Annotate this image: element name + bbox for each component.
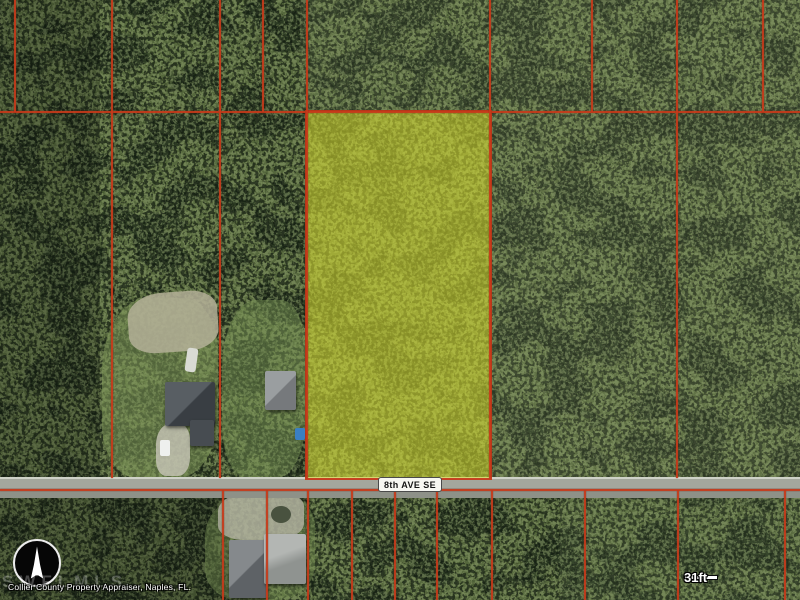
- parcel-boundary-line: [394, 491, 396, 600]
- parcel-boundary-line: [351, 491, 353, 600]
- map-canvas[interactable]: 8th AVE SE SWFLMLS Collier County Proper…: [0, 0, 800, 600]
- building-footprint: [264, 534, 306, 584]
- turnaround-island: [271, 506, 291, 523]
- parcel-boundary-line: [219, 0, 221, 478]
- building-footprint: [229, 540, 267, 598]
- blue-yard-object: [295, 428, 305, 440]
- parcel-boundary-line: [676, 0, 678, 478]
- parcel-boundary-line: [222, 491, 224, 600]
- parcel-boundary-line: [266, 491, 268, 600]
- driveway-loop: [218, 492, 304, 540]
- parcel-boundary-line: [584, 491, 586, 600]
- parcel-boundary-line: [14, 0, 16, 112]
- building-footprint: [265, 371, 296, 410]
- parcel-boundary-line: [436, 491, 438, 600]
- highlighted-parcel[interactable]: [307, 112, 490, 478]
- parcel-boundary-line: [111, 0, 113, 478]
- scale-end-label: 31ft: [684, 570, 707, 585]
- parcel-boundary-line: [307, 491, 309, 600]
- parcel-boundary-line: [0, 111, 800, 113]
- parcel-boundary-line: [489, 0, 491, 478]
- vehicle: [160, 440, 170, 456]
- parcel-boundary-line: [784, 491, 786, 600]
- dirt-clearing: [126, 289, 220, 355]
- parcel-boundary-line: [591, 0, 593, 112]
- building-footprint: [190, 420, 214, 446]
- attribution-text: Collier County Property Appraiser, Naple…: [8, 582, 191, 592]
- parcel-boundary-line: [262, 0, 264, 112]
- parcel-boundary-line: [677, 491, 679, 600]
- parcel-boundary-line: [306, 0, 308, 478]
- parcel-boundary-line: [491, 491, 493, 600]
- street-label: 8th AVE SE: [378, 477, 442, 492]
- parcel-boundary-line: [762, 0, 764, 112]
